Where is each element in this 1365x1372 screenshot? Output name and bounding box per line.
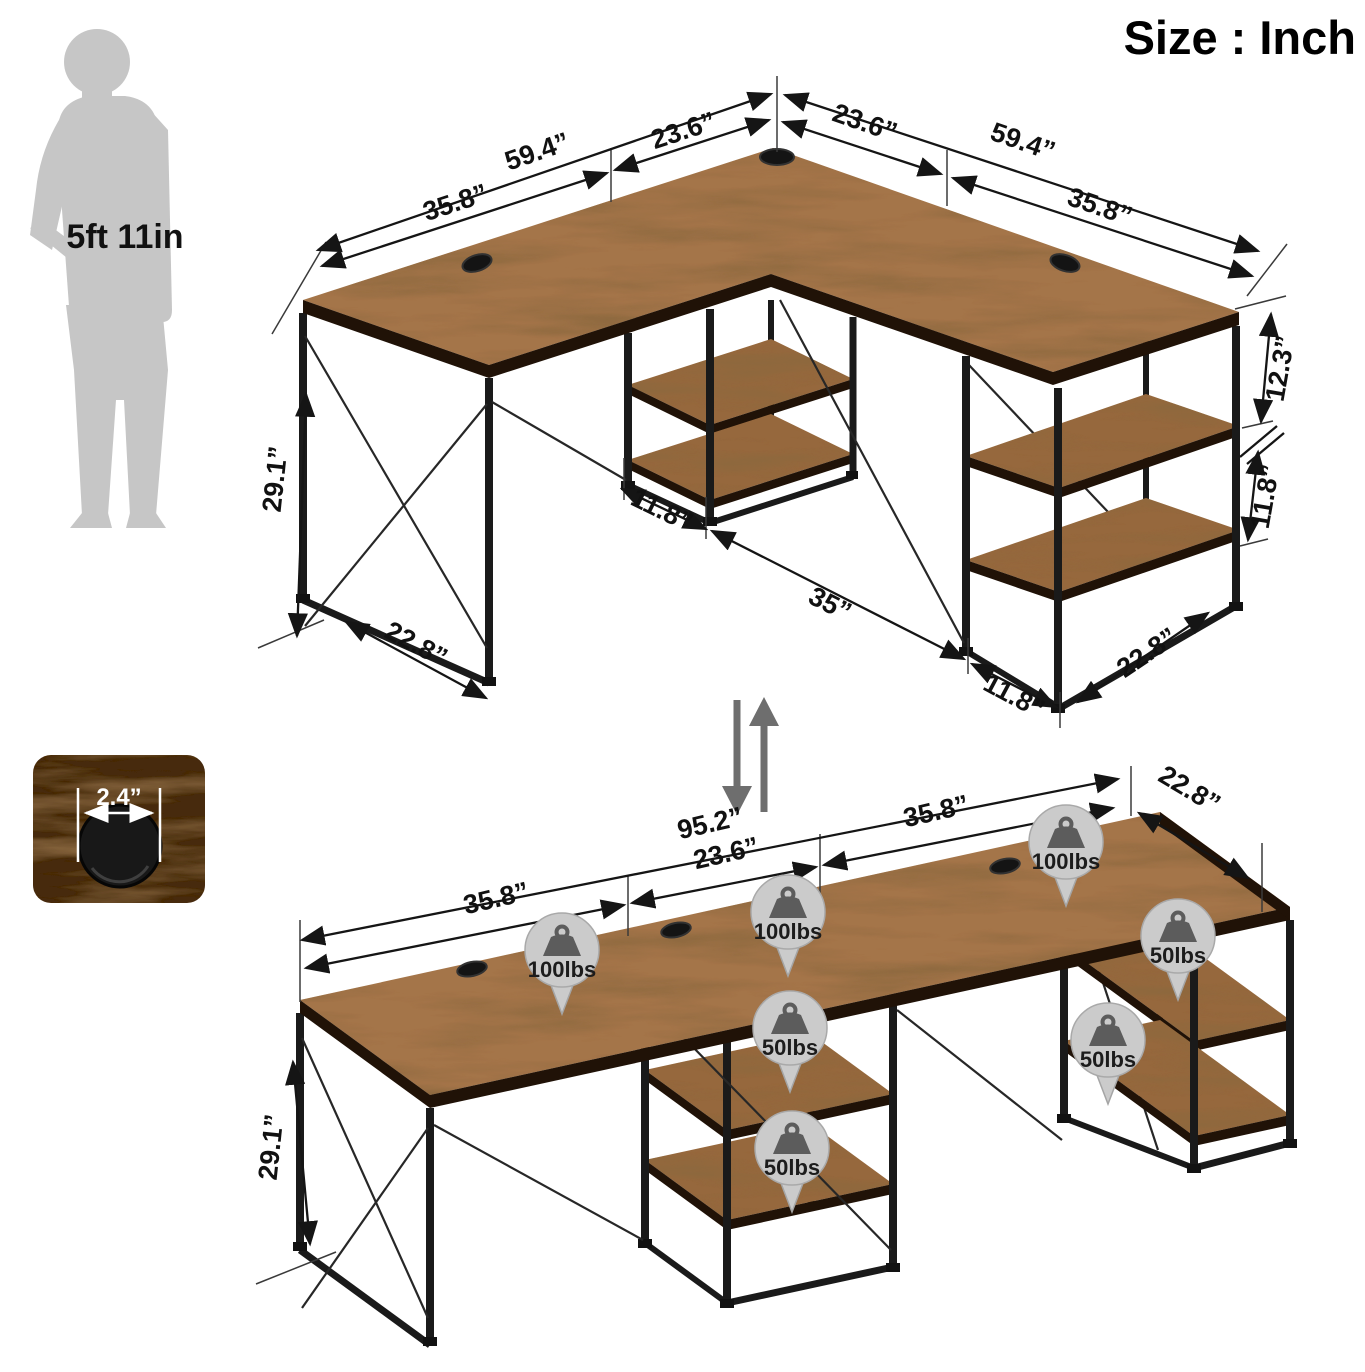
svg-text:100lbs: 100lbs [1032, 849, 1101, 874]
dim-height: 29.1” [257, 445, 294, 514]
dim-depth: 22.8” [1154, 759, 1226, 819]
l-shaped-desk-illustration [296, 148, 1243, 713]
dim-right-shelf: 11.8” [979, 668, 1050, 725]
dim-left-total: 59.4” [501, 127, 573, 177]
diagram-canvas: 5ft 11in Size : Inch [0, 0, 1365, 1372]
dim-right-segment: 35.8” [900, 789, 971, 833]
dim-clearance: 35” [804, 581, 856, 628]
human-figure: 5ft 11in [30, 29, 184, 528]
human-height-label: 5ft 11in [66, 218, 183, 256]
grommet-detail: 2.4” [33, 755, 205, 903]
dim-top-gap: 12.3” [1260, 333, 1301, 403]
dim-right-front: 35.8” [1064, 182, 1136, 232]
dim-right-total: 59.4” [987, 117, 1059, 167]
grommet-hole [79, 805, 161, 887]
svg-text:50lbs: 50lbs [1150, 943, 1206, 968]
dim-left-depth: 22.8” [380, 615, 452, 673]
svg-text:50lbs: 50lbs [762, 1035, 818, 1060]
svg-text:100lbs: 100lbs [754, 919, 823, 944]
svg-text:50lbs: 50lbs [764, 1155, 820, 1180]
dim-left-front: 35.8” [419, 178, 491, 227]
grommet-diameter-label: 2.4” [96, 784, 141, 811]
product-dimension-diagram: 5ft 11in Size : Inch [0, 0, 1365, 1372]
convert-arrows-icon [722, 697, 779, 815]
page-title: Size : Inch [1124, 11, 1356, 64]
svg-text:100lbs: 100lbs [528, 957, 597, 982]
svg-text:50lbs: 50lbs [1080, 1047, 1136, 1072]
dim-long-height: 29.1” [253, 1113, 290, 1182]
dim-right-depth: 22.8” [1111, 622, 1183, 684]
dim-left-segment: 35.8” [460, 876, 531, 920]
dim-shelf-gap: 11.8” [1245, 462, 1286, 531]
